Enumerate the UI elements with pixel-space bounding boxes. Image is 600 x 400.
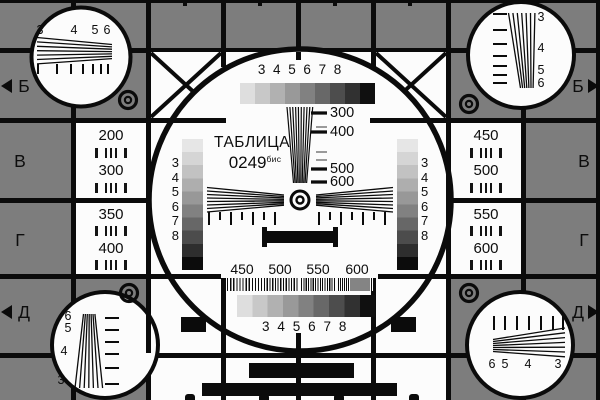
scale-label: 5 [165, 185, 179, 200]
wedge-mark: 300 [330, 106, 364, 121]
scale-label: 8 [165, 229, 179, 244]
card-title: ТАБЛИЦА [214, 135, 288, 151]
test-card: 200 300 350 400 450 500 550 600 [0, 0, 600, 400]
grid-segment [370, 118, 446, 123]
corner-label: 5 [89, 24, 101, 37]
corner-label: 3 [55, 374, 67, 387]
bottom-bar-short [249, 363, 354, 378]
bullseye-top-left [120, 92, 137, 109]
grid-segment [371, 52, 376, 67]
scale-label: 8 [330, 62, 345, 77]
card-code: 0249бис [222, 150, 288, 172]
edge-stub [408, 0, 412, 6]
grid-segment [221, 278, 226, 400]
corner-label: 4 [58, 345, 70, 358]
scale-label: 6 [165, 200, 179, 215]
corner-label: 3 [552, 358, 564, 371]
scale-label: 7 [315, 62, 330, 77]
right-column-labels: 3 4 5 6 7 8 [421, 156, 435, 244]
wedge-mark: 600 [330, 175, 364, 190]
black-square-right [391, 317, 416, 332]
scale-label: 6 [421, 200, 435, 215]
frequency-burst [227, 278, 262, 291]
corner-label: 6 [535, 77, 547, 90]
bullseye-bottom-right [461, 285, 478, 302]
scale-label: 5 [284, 62, 299, 77]
top-grayscale-labels: 3 4 5 6 7 8 [254, 62, 345, 77]
grayscale-strip-bottom [237, 295, 375, 317]
corner-label: 5 [62, 322, 74, 335]
row-label-right: Б [566, 76, 590, 96]
scale-label: 3 [258, 319, 273, 334]
wedge-ticks-bottom-right [494, 316, 563, 330]
row-marker-right-icon [588, 305, 599, 319]
wedge-mark: 400 [330, 125, 364, 140]
corner-label: 4 [68, 24, 80, 37]
grid-segment [146, 52, 151, 353]
grid-segment [296, 52, 301, 60]
black-square-left [181, 317, 206, 332]
scale-label: 4 [165, 171, 179, 186]
bullseye-top-right [461, 96, 478, 113]
row-label-right: В [572, 151, 596, 171]
burst-label: 550 [303, 261, 333, 277]
center-tick-row [329, 212, 386, 220]
row-label-right: Д [566, 302, 590, 322]
center-tick-row [219, 212, 278, 220]
scale-label: 4 [421, 171, 435, 186]
frequency-burst [264, 278, 299, 291]
burst-label: 450 [227, 261, 257, 277]
corner-label: 5 [499, 358, 511, 371]
corner-label: 3 [34, 24, 46, 37]
corner-circle-bottom-right [467, 292, 573, 398]
scale-label: 7 [320, 319, 335, 334]
scale-label: 3 [421, 156, 435, 171]
bottom-grayscale-labels: 3 4 5 6 7 8 [258, 319, 350, 334]
edge-stub [259, 394, 269, 400]
grid-segment [151, 274, 221, 279]
row-marker-right-icon [588, 79, 599, 93]
grayscale-column-right [397, 139, 418, 270]
reference-bar-cap [262, 227, 267, 247]
grid-segment [378, 274, 446, 279]
scale-label: 3 [254, 62, 269, 77]
grid-segment [151, 118, 226, 123]
corner-label: 3 [535, 11, 547, 24]
edge-stub [333, 0, 337, 6]
scale-label: 7 [165, 214, 179, 229]
scale-label: 7 [421, 214, 435, 229]
row-label-left: Г [8, 230, 32, 250]
edge-stub [409, 394, 419, 400]
corner-label: 4 [522, 358, 534, 371]
row-label-left: Д [12, 302, 36, 322]
edge-stub [334, 394, 344, 400]
edge-stub [258, 0, 262, 6]
grayscale-strip-top [240, 83, 375, 104]
row-marker-left-icon [1, 79, 12, 93]
grid-segment [446, 52, 451, 353]
grid-segment [221, 52, 226, 67]
corner-label: 6 [101, 24, 113, 37]
scale-label: 6 [304, 319, 319, 334]
grayscale-column-left [182, 139, 203, 270]
burst-label: 600 [342, 261, 372, 277]
left-column-labels: 3 4 5 6 7 8 [165, 156, 179, 244]
scale-label: 5 [421, 185, 435, 200]
bottom-bar-long [202, 383, 397, 396]
card-code-number: 0249 [229, 153, 267, 172]
scale-label: 3 [165, 156, 179, 171]
card-code-suffix: бис [267, 154, 282, 164]
row-label-left: В [8, 151, 32, 171]
frequency-burst [338, 278, 373, 291]
scale-label: 8 [335, 319, 350, 334]
scale-label: 5 [289, 319, 304, 334]
reference-bar [265, 231, 335, 243]
burst-label: 500 [265, 261, 295, 277]
corner-label: 4 [535, 42, 547, 55]
scale-label: 6 [300, 62, 315, 77]
row-label-left: Б [12, 76, 36, 96]
frequency-burst [301, 278, 336, 291]
scale-label: 8 [421, 229, 435, 244]
corner-label: 6 [486, 358, 498, 371]
edge-stub [185, 394, 195, 400]
scale-label: 4 [269, 62, 284, 77]
row-label-right: Г [572, 230, 596, 250]
reference-bar-cap [333, 227, 338, 247]
row-marker-left-icon [1, 305, 12, 319]
scale-label: 4 [273, 319, 288, 334]
edge-stub [183, 0, 187, 6]
